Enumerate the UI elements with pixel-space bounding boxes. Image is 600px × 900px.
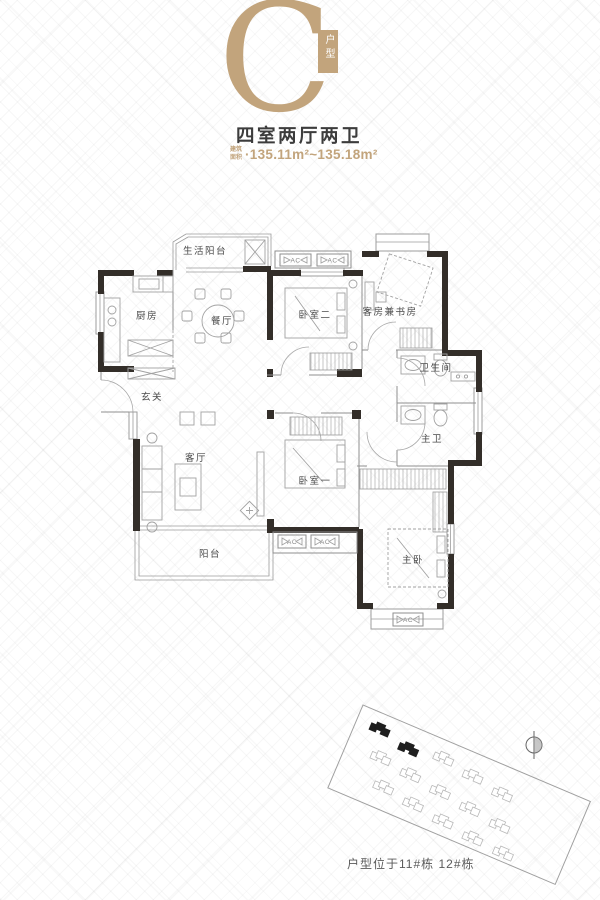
room-label-bathroom: 卫生间 [419, 362, 452, 374]
ac-label-4: AC [320, 539, 330, 546]
ac-label-3: AC [287, 539, 297, 546]
ac-label-2: AC [327, 258, 337, 265]
ac-label-5: AC [403, 617, 413, 624]
area-value: ·135.11m²~135.18m² [245, 147, 378, 162]
room-label-study: 客房兼书房 [362, 306, 417, 318]
room-label-master-bath: 主卫 [421, 433, 443, 445]
room-label-bedroom-2: 卧室二 [298, 309, 331, 321]
floorplan-drawing: AC AC AC AC AC 生活阳台 厨房 餐厅 卧室二 客房兼书房 卫生间 … [85, 226, 485, 641]
room-labels: 生活阳台 厨房 餐厅 卧室二 客房兼书房 卫生间 玄关 客厅 卧室一 主卫 主卧… [136, 245, 453, 566]
ac-label-1: AC [290, 258, 300, 265]
room-label-life-balcony: 生活阳台 [183, 245, 227, 257]
unit-type-letter: C [218, 0, 333, 134]
floorplan-page: C 户型 四室两厅两卫 建筑面积 ·135.11m²~135.18m² [0, 0, 600, 900]
highlighted-buildings [366, 720, 422, 757]
room-label-balcony: 阳台 [199, 548, 221, 560]
unit-type-badge: 户型 [318, 30, 338, 73]
room-label-dining-room: 餐厅 [211, 315, 233, 327]
other-buildings [354, 727, 539, 862]
room-label-foyer: 玄关 [141, 391, 163, 403]
windows [96, 234, 482, 629]
room-label-bedroom-1: 卧室一 [298, 475, 331, 487]
room-label-master-bedroom: 主卧 [402, 554, 424, 566]
north-compass-icon [526, 731, 542, 759]
area-label: 建筑面积 [230, 147, 243, 162]
site-caption: 户型位于11#栋 12#栋 [347, 855, 475, 872]
unit-area: 建筑面积 ·135.11m²~135.18m² [230, 147, 378, 162]
room-label-living-room: 客厅 [185, 452, 207, 464]
unit-title: 四室两厅两卫 [236, 122, 362, 148]
room-label-kitchen: 厨房 [136, 310, 158, 322]
